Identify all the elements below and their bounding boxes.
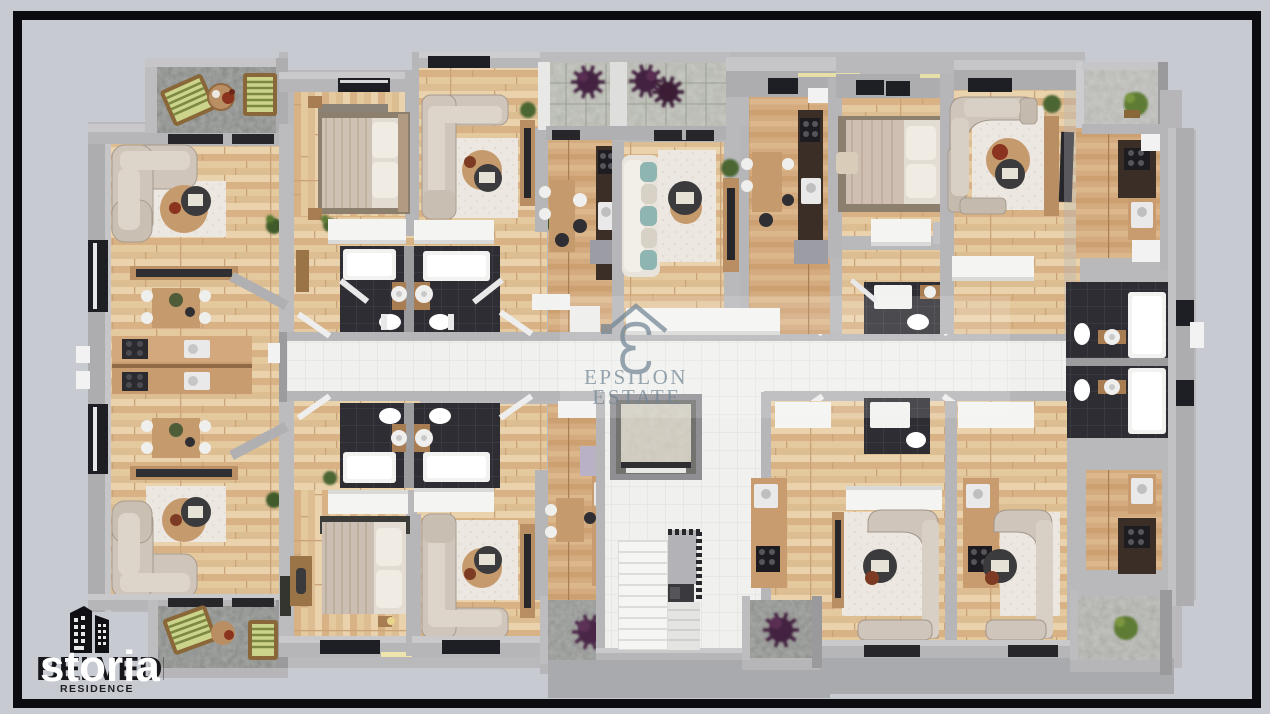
svg-text:ESTATE: ESTATE xyxy=(592,385,681,409)
svg-text:RESIDENCE: RESIDENCE xyxy=(60,683,134,695)
